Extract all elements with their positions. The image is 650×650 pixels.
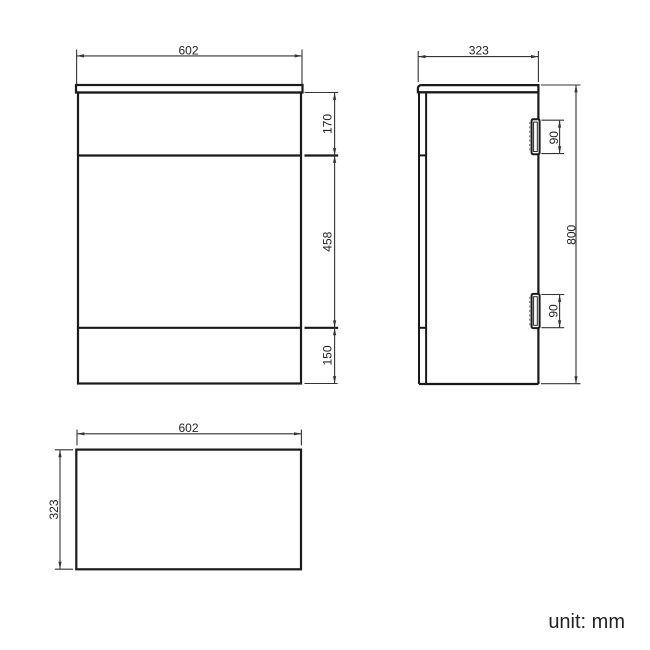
svg-text:323: 323 (47, 499, 61, 519)
svg-text:150: 150 (320, 345, 334, 365)
svg-text:800: 800 (564, 224, 578, 244)
svg-text:90: 90 (547, 304, 561, 318)
svg-text:170: 170 (320, 114, 334, 134)
svg-text:unit: mm: unit: mm (548, 611, 625, 633)
svg-text:602: 602 (178, 44, 198, 58)
svg-text:323: 323 (469, 43, 489, 57)
svg-text:458: 458 (320, 231, 334, 251)
svg-text:90: 90 (547, 131, 561, 145)
svg-text:602: 602 (178, 421, 198, 435)
